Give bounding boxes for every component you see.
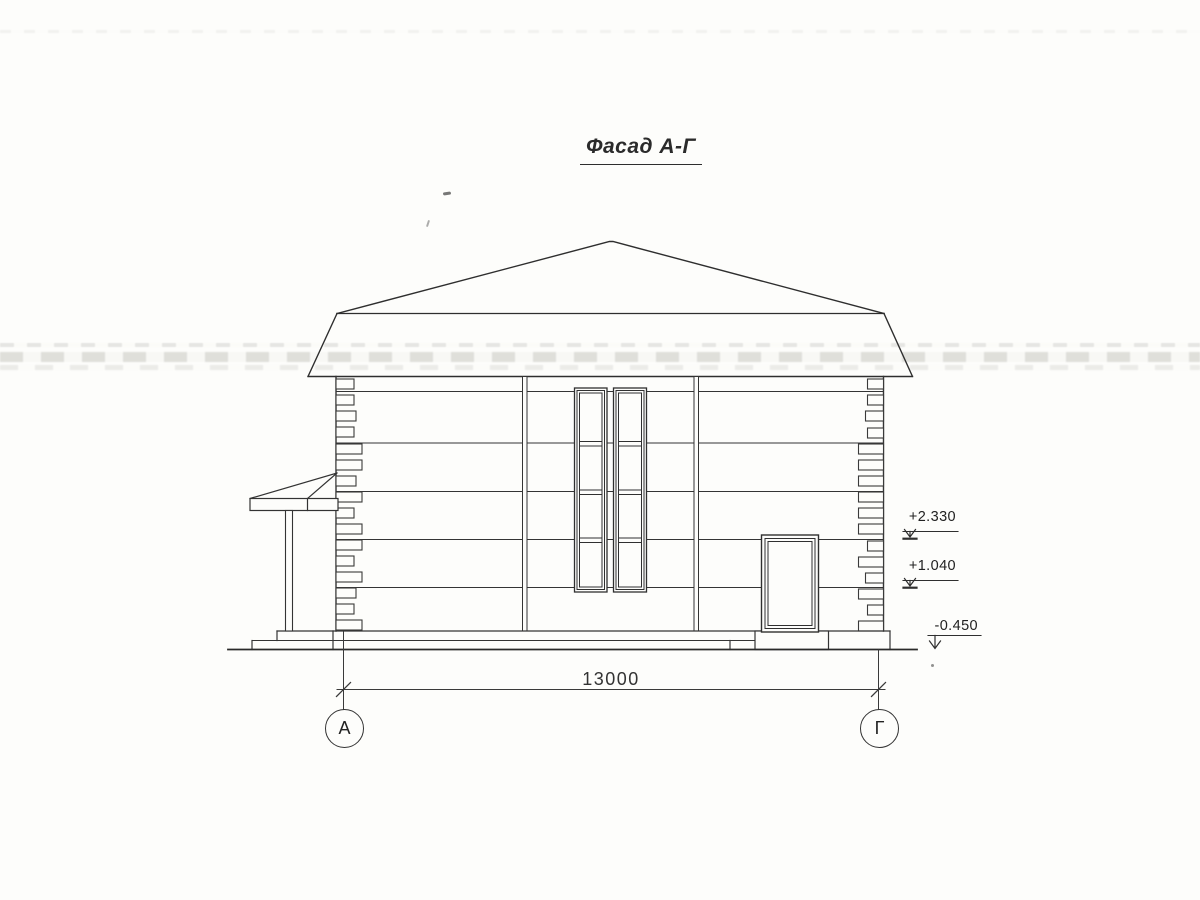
door-outer-frame — [762, 535, 819, 632]
drawing-title: Фасад А-Г — [580, 135, 702, 165]
elevation-mark-1040 — [903, 579, 958, 588]
porch-post — [286, 511, 293, 632]
window-muntin — [619, 538, 642, 543]
log-notch — [336, 588, 356, 598]
log-notch — [868, 428, 884, 438]
log-notch — [866, 573, 884, 583]
log-notch — [336, 427, 354, 437]
log-notch — [859, 557, 884, 567]
elevation-arrow — [905, 579, 916, 587]
elevation-mark-0450 — [928, 636, 981, 649]
log-notch — [859, 621, 884, 631]
scanned-facade-drawing: Фасад А-Г 13000 +2.330 +1.040 -0.450 А Г — [0, 0, 1200, 900]
window-muntin — [580, 490, 603, 495]
log-notch — [868, 605, 884, 615]
elevation-mark-2330 — [903, 530, 958, 539]
log-notch — [859, 524, 884, 534]
roof-slopes — [337, 242, 884, 314]
axis-bubble-g: Г — [860, 709, 899, 748]
drawing-title-text: Фасад А-Г — [586, 135, 696, 158]
log-notch — [336, 395, 354, 405]
log-notch — [859, 508, 884, 518]
corner-notches-left — [336, 379, 362, 630]
log-notch — [336, 411, 356, 421]
wall-joint-board — [694, 377, 699, 632]
log-notch — [859, 444, 884, 454]
log-notch — [336, 444, 362, 454]
canopy-slope-lines — [250, 473, 337, 499]
log-notch — [336, 460, 362, 470]
elevation-label-2330: +2.330 — [900, 509, 956, 525]
window-right — [614, 388, 647, 592]
log-notch — [859, 476, 884, 486]
log-notch — [336, 476, 356, 486]
log-notch — [336, 572, 362, 582]
log-notch — [859, 492, 884, 502]
log-notch — [336, 508, 354, 518]
axis-letter-g: Г — [875, 718, 885, 739]
log-notch — [336, 524, 362, 534]
elevation-label-1040: +1.040 — [900, 558, 956, 574]
roof-fascia — [308, 314, 913, 377]
axis-letter-a: А — [338, 718, 350, 739]
log-notch — [336, 492, 362, 502]
corner-notches-right — [859, 379, 884, 631]
log-notch — [868, 541, 884, 551]
dimension-label: 13000 — [566, 669, 656, 690]
canopy-fascia — [250, 499, 338, 511]
elevation-arrow — [930, 636, 941, 649]
log-notch — [336, 556, 354, 566]
window-muntin — [619, 442, 642, 447]
log-notch — [859, 460, 884, 470]
log-notch — [868, 379, 884, 389]
window-muntin — [580, 538, 603, 543]
log-notch — [868, 395, 884, 405]
log-notch — [336, 620, 362, 630]
elevation-label-0450: -0.450 — [928, 618, 978, 634]
roof — [308, 242, 913, 377]
stoop-platform — [755, 631, 829, 650]
log-notch — [859, 589, 884, 599]
log-notch — [336, 379, 354, 389]
log-notch — [866, 411, 884, 421]
door — [762, 535, 819, 632]
log-notch — [336, 540, 362, 550]
elevation-arrow — [905, 530, 916, 538]
window-muntin — [619, 490, 642, 495]
log-notch — [336, 604, 354, 614]
window-left — [575, 388, 608, 592]
wall-joint-board — [523, 377, 528, 632]
axis-bubble-a: А — [325, 709, 364, 748]
window-muntin — [580, 442, 603, 447]
porch-canopy — [250, 473, 338, 511]
